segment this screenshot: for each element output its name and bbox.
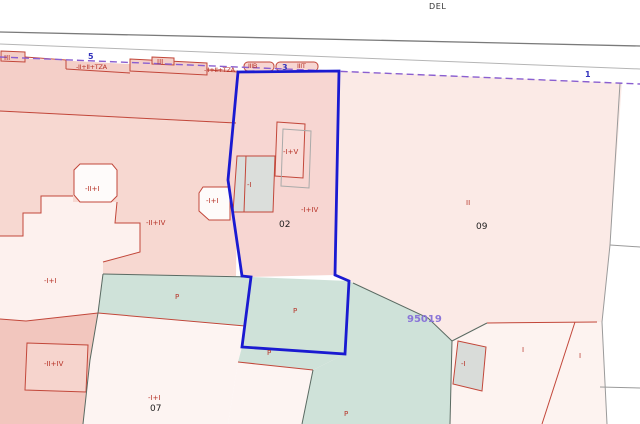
building-gray-02 <box>233 156 275 212</box>
building-white-right <box>199 187 230 220</box>
cadastral-map-viewport[interactable]: DEL III 5 -II+II+TZA III -II+II+TZA IIIB… <box>0 0 640 424</box>
parcel-white-2[interactable] <box>228 362 313 424</box>
parcel-07[interactable] <box>83 313 247 424</box>
road-edge-dark <box>0 32 640 46</box>
parcel-02-green[interactable] <box>242 277 349 354</box>
building-gray-right <box>453 341 486 391</box>
cadastral-map-canvas <box>0 0 640 424</box>
building-white-octagon <box>74 164 117 202</box>
parcel-iiiv[interactable] <box>25 343 88 392</box>
